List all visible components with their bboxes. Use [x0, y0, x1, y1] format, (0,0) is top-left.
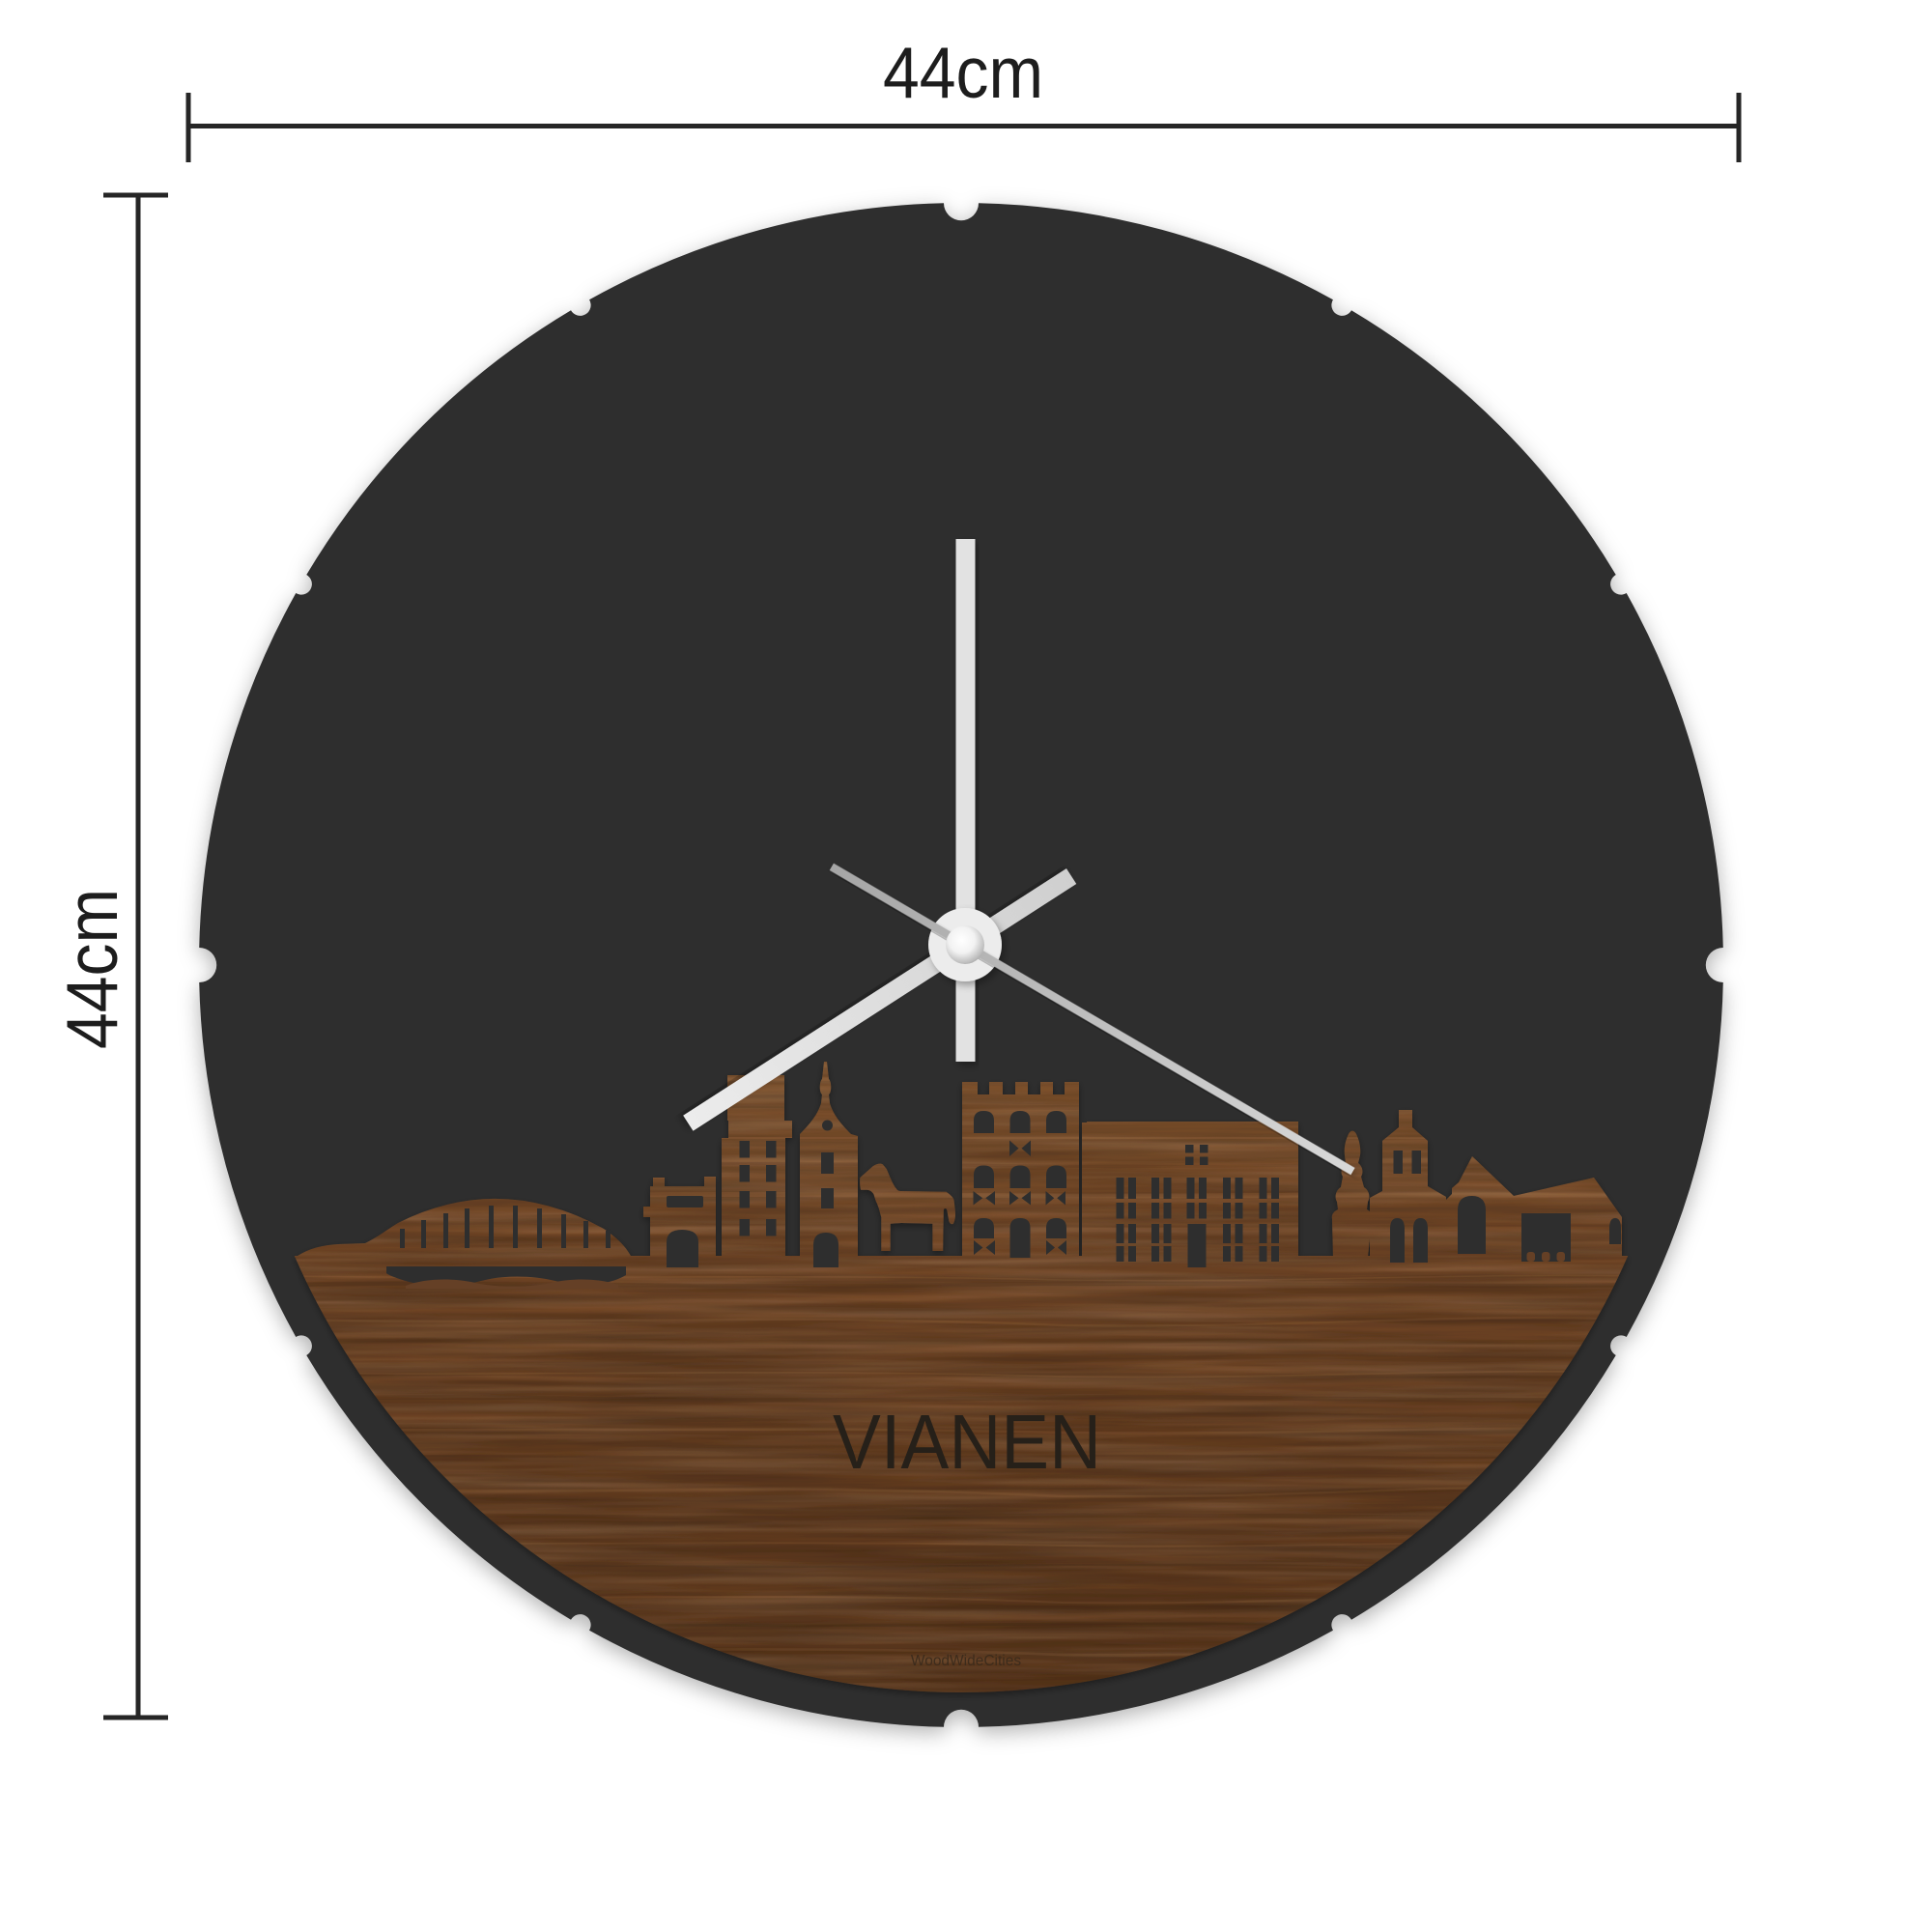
svg-text:44cm: 44cm: [883, 32, 1043, 113]
svg-text:VIANEN: VIANEN: [833, 1399, 1101, 1485]
svg-text:44cm: 44cm: [51, 889, 132, 1049]
svg-text:WoodWideCities: WoodWideCities: [911, 1653, 1022, 1669]
